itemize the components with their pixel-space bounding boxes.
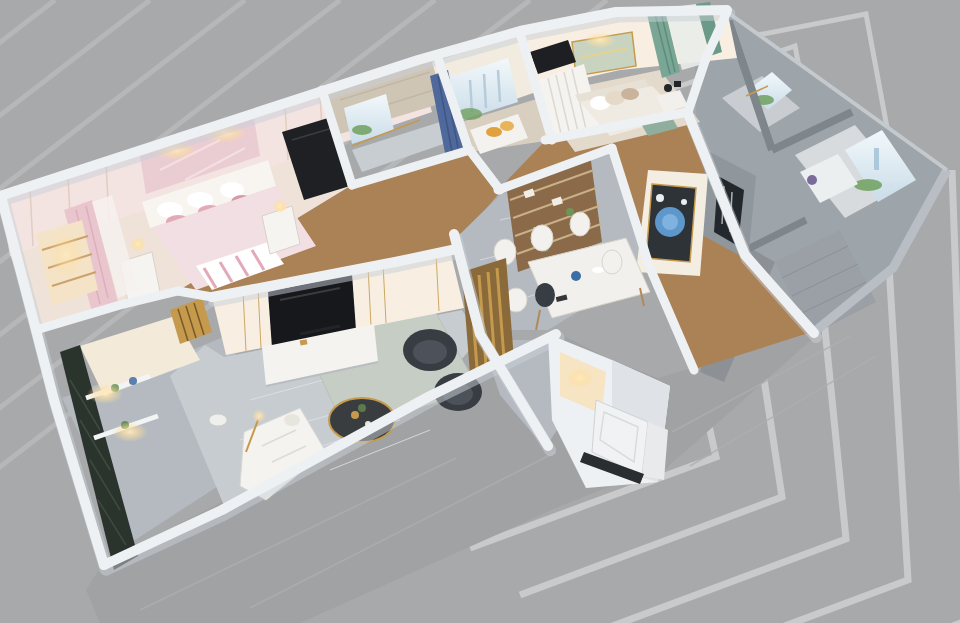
shelf-spotlight-glow bbox=[112, 422, 148, 442]
wall-link bbox=[178, 291, 212, 297]
screenshot-root bbox=[0, 0, 960, 623]
art-white-blob bbox=[656, 194, 664, 202]
art-white-blob bbox=[681, 199, 687, 205]
gold-decor bbox=[351, 411, 359, 419]
window-city-right bbox=[874, 148, 879, 170]
blue-rose-center bbox=[662, 214, 678, 230]
black-lamp bbox=[664, 84, 672, 92]
bookshelf-glow bbox=[48, 233, 84, 277]
wall-spotlight-glow bbox=[584, 32, 616, 48]
side-table bbox=[209, 414, 227, 426]
window-greenery-right bbox=[854, 179, 882, 191]
black-box bbox=[674, 81, 681, 87]
shelf-spotlight-glow bbox=[87, 384, 123, 404]
blue-teapot bbox=[571, 271, 581, 281]
table-plant bbox=[358, 404, 366, 412]
apartment-render bbox=[0, 0, 960, 623]
purple-plant bbox=[807, 175, 817, 185]
dining-chair-dark bbox=[535, 283, 555, 307]
floor-lamp-glow bbox=[252, 409, 266, 423]
window-greenery bbox=[352, 125, 372, 135]
yellow-cushion bbox=[486, 127, 502, 137]
entry-glow bbox=[566, 368, 594, 388]
sofa-pillow bbox=[284, 414, 300, 426]
yellow-cushion bbox=[500, 121, 514, 131]
armchair-cushion bbox=[413, 340, 447, 364]
plates bbox=[592, 267, 604, 273]
lamp-left-glow bbox=[130, 236, 146, 252]
lamp-right-glow bbox=[272, 198, 288, 214]
